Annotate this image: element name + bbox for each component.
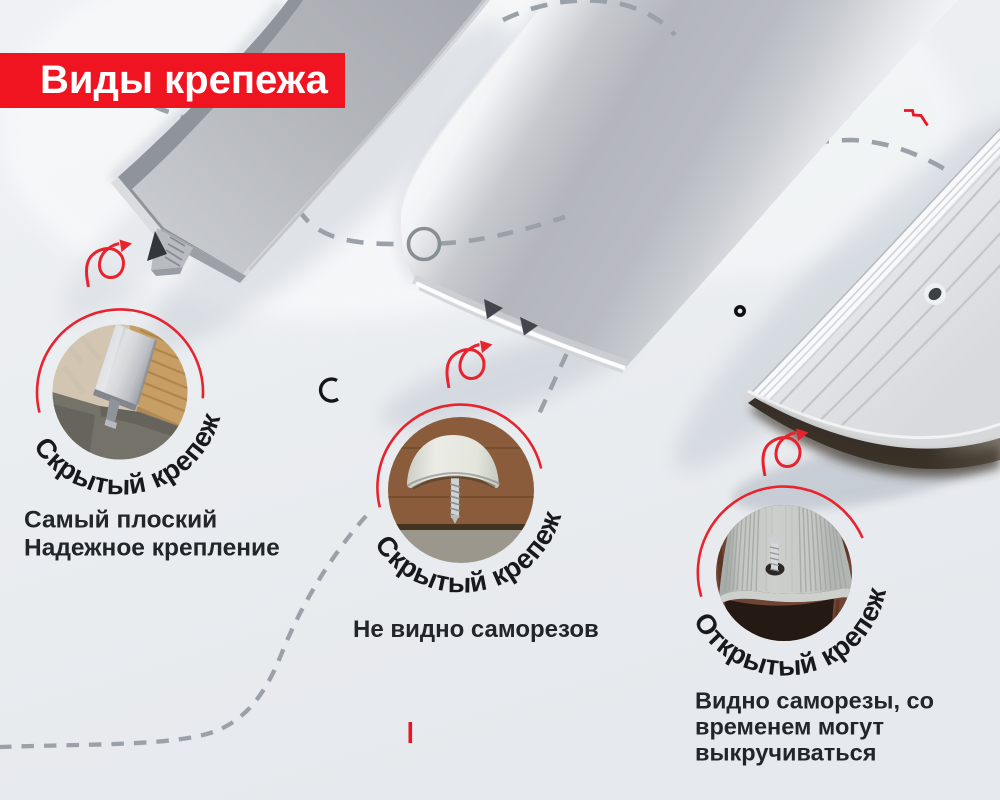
svg-text:Виды крепежа: Виды крепежа	[40, 58, 329, 102]
svg-text:Надежное крепление: Надежное крепление	[24, 535, 280, 562]
svg-text:выкручиваться: выкручиваться	[695, 740, 876, 766]
svg-text:Самый плоский: Самый плоский	[24, 507, 217, 534]
svg-text:временем могут: временем могут	[695, 714, 884, 740]
svg-text:Видно саморезы, со: Видно саморезы, со	[695, 688, 934, 714]
svg-text:Не видно саморезов: Не видно саморезов	[353, 616, 599, 643]
